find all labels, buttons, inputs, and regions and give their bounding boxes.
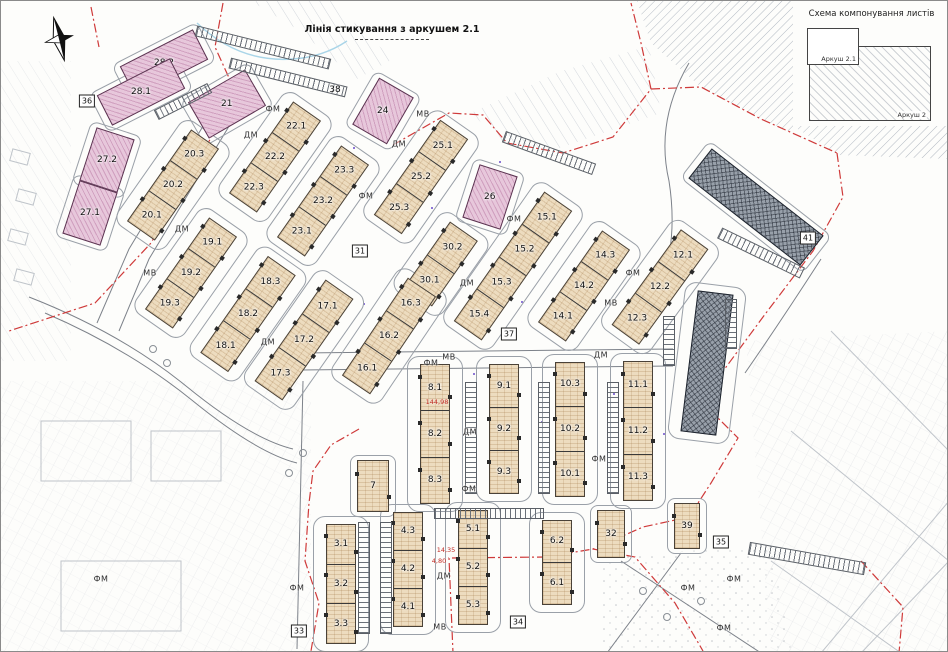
- parking-row: [538, 382, 550, 494]
- building-number: 16.1: [357, 363, 377, 373]
- building-number: 10.2: [560, 424, 580, 434]
- building-number: 32: [605, 529, 616, 539]
- building-8: 8.18.28.3: [420, 364, 450, 504]
- building-number: 10.1: [560, 469, 580, 479]
- building-segment: 9.3: [490, 450, 518, 493]
- zone-label: ДМ: [175, 225, 189, 234]
- building-number: 3.2: [334, 579, 348, 589]
- building-number: 19.3: [160, 298, 180, 308]
- zone-label: ДМ: [392, 140, 406, 149]
- building-number: 8.1: [428, 383, 442, 393]
- building-number: 30.1: [420, 275, 440, 285]
- parking-row: [502, 131, 596, 175]
- zone-label: ФМ: [359, 192, 374, 201]
- building-segment: 5.3: [459, 586, 487, 624]
- building-number: 11.2: [628, 426, 648, 436]
- building-number: 19.2: [181, 268, 201, 278]
- building-segment: 4.1: [394, 588, 422, 626]
- building-10: 10.310.210.1: [555, 362, 585, 497]
- site-number: 37: [501, 328, 517, 341]
- building-number: 28.1: [131, 87, 151, 97]
- building-number: 23.1: [292, 226, 312, 236]
- building-number: 4.2: [401, 564, 415, 574]
- building-number: 14.2: [574, 281, 594, 291]
- building-number: 25.1: [433, 141, 453, 151]
- building-7: 7: [357, 460, 389, 512]
- building-number: 18.3: [260, 277, 280, 287]
- building-9: 9.19.29.3: [489, 364, 519, 494]
- legend-title: Схема компонування листів: [796, 9, 947, 19]
- building-number: 23.2: [313, 196, 333, 206]
- zone-label: ФМ: [266, 105, 281, 114]
- zone-label: ДМ: [244, 131, 258, 140]
- building-number: 22.1: [286, 122, 306, 132]
- dimension-label: 144,98: [426, 398, 449, 406]
- building-number: 11.3: [628, 472, 648, 482]
- site-number: 41: [800, 232, 816, 245]
- building-number: 6.1: [550, 578, 564, 588]
- building-number: 20.3: [184, 150, 204, 160]
- parking-row: [380, 522, 392, 634]
- building-number: 3.1: [334, 539, 348, 549]
- zone-label: ФМ: [681, 584, 696, 593]
- building-number: 16.3: [401, 299, 421, 309]
- building-number: 19.1: [202, 238, 222, 248]
- dimension-label: 4,80: [432, 557, 446, 565]
- building-number: 22.3: [244, 182, 264, 192]
- zone-label: ДМ: [437, 572, 451, 581]
- zone-label: ФМ: [94, 575, 109, 584]
- zone-label: МВ: [433, 623, 446, 632]
- building-segment: 7: [358, 461, 388, 511]
- building-segment: 5.2: [459, 548, 487, 586]
- building-number: 15.4: [469, 309, 489, 319]
- zone-label: МВ: [143, 269, 156, 278]
- parking-row: [663, 316, 675, 366]
- zone-label: ДМ: [463, 428, 477, 437]
- building-segment: 3.1: [327, 525, 355, 564]
- building-number: 15.1: [537, 213, 557, 223]
- building-number: 12.3: [627, 314, 647, 324]
- site-plan-sheet: 20.320.220.122.122.222.323.323.223.125.1…: [0, 0, 948, 652]
- zone-label: ФМ: [592, 455, 607, 464]
- building-number: 25.2: [411, 172, 431, 182]
- zone-label: ФМ: [626, 269, 641, 278]
- building-number: 9.1: [497, 381, 511, 391]
- building-number: 10.3: [560, 379, 580, 389]
- building-segment: 8.2: [421, 410, 449, 456]
- building-number: 14.1: [553, 311, 573, 321]
- building-39: 39: [674, 503, 700, 549]
- building-number: 3.3: [334, 619, 348, 629]
- building-segment: 8.3: [421, 457, 449, 503]
- zone-label: ДМ: [261, 338, 275, 347]
- parking-row: [725, 299, 737, 349]
- building-segment: 32: [598, 511, 624, 557]
- building-number: 11.1: [628, 380, 648, 390]
- legend-sheet-2-1-label: Аркуш 2.1: [821, 55, 856, 63]
- building-11: 11.111.211.3: [623, 361, 653, 501]
- site-number: 34: [510, 616, 526, 629]
- zone-label: ФМ: [717, 624, 732, 633]
- parking-row: [434, 508, 544, 519]
- building-number: 17.3: [270, 369, 290, 379]
- building-number: 27.1: [80, 208, 100, 218]
- building-number: 9.2: [497, 424, 511, 434]
- building-number: 4.3: [401, 526, 415, 536]
- zone-label: ФМ: [290, 584, 305, 593]
- building-number: 20.1: [142, 210, 162, 220]
- dimension-label: 14,35: [437, 546, 456, 554]
- zone-label: ФМ: [462, 485, 477, 494]
- building-number: 14.3: [595, 251, 615, 261]
- site-number: 33: [291, 625, 307, 638]
- building-number: 17.2: [294, 335, 314, 345]
- building-number: 12.2: [650, 282, 670, 292]
- building-number: 8.2: [428, 429, 442, 439]
- building-32: 32: [597, 510, 625, 558]
- building-number: 27.2: [97, 155, 117, 165]
- building-number: 20.2: [163, 180, 183, 190]
- building-segment: 3.2: [327, 564, 355, 604]
- building-number: 15.2: [514, 245, 534, 255]
- zone-label: ФМ: [424, 359, 439, 368]
- parking-row: [748, 541, 866, 574]
- building-number: 7: [370, 481, 376, 491]
- zone-label: ДМ: [460, 279, 474, 288]
- building-number: 22.2: [265, 152, 285, 162]
- building-number: 16.2: [379, 331, 399, 341]
- building-number: 26: [484, 192, 495, 202]
- building-number: 21: [221, 99, 232, 109]
- building-number: 25.3: [389, 203, 409, 213]
- sheet-composition-legend: Схема компонування листів Аркуш 2 Аркуш …: [796, 9, 947, 131]
- zone-label: МВ: [416, 110, 429, 119]
- building-segment: 10.3: [556, 363, 584, 407]
- building-segment: 39: [675, 504, 699, 548]
- building-segment: 6.1: [543, 562, 571, 604]
- building-segment: 11.2: [624, 407, 652, 453]
- sheet-joining-dash-line: [355, 39, 429, 40]
- site-number: 35: [713, 536, 729, 549]
- building-segment: 10.2: [556, 406, 584, 451]
- building-number: 8.3: [428, 475, 442, 485]
- zone-label: МВ: [604, 299, 617, 308]
- building-segment: 4.3: [394, 513, 422, 550]
- building-number: 39: [681, 521, 692, 531]
- zone-label: ФМ: [727, 575, 742, 584]
- legend-sheet-2-label: Аркуш 2: [897, 111, 928, 119]
- site-number: 38: [329, 85, 340, 95]
- parking-row: [465, 382, 477, 494]
- building-number: 18.2: [238, 309, 258, 319]
- legend-sheet-2-1: Аркуш 2.1: [807, 28, 859, 65]
- building-6: 6.26.1: [542, 520, 572, 605]
- building-number: 30.2: [442, 243, 462, 253]
- building-number: 23.3: [334, 166, 354, 176]
- building-4: 4.34.24.1: [393, 512, 423, 627]
- building-number: 6.2: [550, 536, 564, 546]
- building-segment: 6.2: [543, 521, 571, 562]
- building-number: 12.1: [673, 250, 693, 260]
- zone-label: ДМ: [594, 351, 608, 360]
- site-number: 31: [352, 245, 368, 258]
- building-segment: 3.3: [327, 603, 355, 643]
- building-number: 5.2: [466, 562, 480, 572]
- building-segment: 10.1: [556, 451, 584, 496]
- building-number: 4.1: [401, 602, 415, 612]
- parking-row: [358, 522, 370, 634]
- sheet-joining-note: Лінія стикування з аркушем 2.1: [297, 24, 487, 40]
- building-number: 9.3: [497, 467, 511, 477]
- building-segment: 11.1: [624, 362, 652, 407]
- building-number: 17.1: [317, 301, 337, 311]
- zone-label: МВ: [442, 353, 455, 362]
- building-number: 5.3: [466, 600, 480, 610]
- sheet-joining-text: Лінія стикування з аркушем 2.1: [297, 24, 487, 35]
- building-5: 5.15.25.3: [458, 510, 488, 625]
- building-segment: 9.2: [490, 407, 518, 450]
- site-number: 36: [79, 95, 95, 108]
- building-segment: 11.3: [624, 454, 652, 500]
- building-number: 24: [377, 106, 388, 116]
- building-3: 3.13.23.3: [326, 524, 356, 644]
- building-segment: 4.2: [394, 550, 422, 588]
- parking-row: [607, 382, 619, 494]
- building-number: 18.1: [216, 341, 236, 351]
- building-segment: 9.1: [490, 365, 518, 407]
- zone-label: ФМ: [507, 215, 522, 224]
- building-number: 5.1: [466, 524, 480, 534]
- building-number: 15.3: [492, 277, 512, 287]
